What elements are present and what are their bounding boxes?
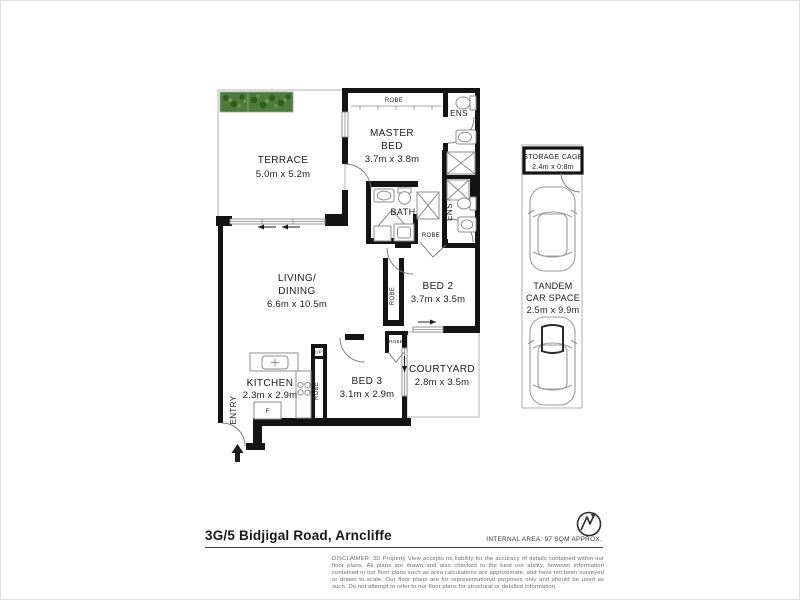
entry-door-arc <box>222 423 245 446</box>
footer-divider <box>205 547 603 548</box>
bath-label: BATH <box>391 207 416 217</box>
master-bed-label: BED <box>381 141 403 152</box>
shower-icon <box>447 180 469 200</box>
robe-label: ROBE <box>389 339 403 344</box>
tandem-label: TANDEM <box>533 281 572 291</box>
car-space-outline <box>522 145 582 408</box>
parking <box>522 145 582 408</box>
master-bed-dims: 3.7m x 3.8m <box>365 154 419 165</box>
robe-label: ROBE <box>422 233 440 239</box>
kitchen-dims: 2.3m x 2.9m <box>243 390 297 401</box>
bed2-dims: 3.7m x 3.5m <box>411 294 465 305</box>
floorplan-drawing: TERRACE 5.0m x 5.2m MASTER BED 3.7m x 3.… <box>0 0 800 600</box>
terrace-dims: 5.0m x 5.2m <box>256 169 310 180</box>
robe-label: ROBE <box>385 98 403 104</box>
ensuite-label: ENS <box>450 109 468 118</box>
laundry-cabinet-icon <box>374 226 391 241</box>
shower-icon <box>417 192 439 219</box>
plant-boxes <box>220 92 293 112</box>
internal-area-label: INTERNAL AREA: 97 SQM APPROX. <box>402 536 602 543</box>
fridge-label: F <box>266 409 270 415</box>
courtyard-dims: 2.8m x 3.5m <box>415 377 469 388</box>
entry-label: ENTRY <box>229 395 238 424</box>
storage-cage-door-arc <box>561 173 580 192</box>
agency-logo-icon <box>578 513 601 536</box>
kitchen-label: KITCHEN <box>247 378 294 389</box>
tandem-label: CAR SPACE <box>526 293 580 303</box>
bed3-dims: 3.1m x 2.9m <box>340 389 394 400</box>
car-icon <box>528 187 577 271</box>
ensuite2-label: ENS <box>445 203 454 221</box>
bed3-door-arc <box>340 338 364 362</box>
toilet-icon <box>399 192 411 204</box>
storage-cage-label: STORAGE CAGE <box>523 154 583 161</box>
bed2-label: BED 2 <box>423 281 454 292</box>
robe-label: ROBE <box>314 382 320 400</box>
shower-icon <box>447 152 475 174</box>
bed3-label: BED 3 <box>352 376 383 387</box>
toilet-icon <box>470 96 476 110</box>
living-label: LIVING/ <box>278 273 316 284</box>
toilet-icon <box>458 198 471 209</box>
entry-arrow-icon <box>232 444 244 462</box>
storage-cage-dims: 2.4m x 0.8m <box>532 164 574 171</box>
terrace-label: TERRACE <box>258 155 309 166</box>
floorplan-page: { "rooms": { "terrace": {"name": "TERRAC… <box>0 0 800 600</box>
courtyard-label: COURTYARD <box>409 364 475 375</box>
tandem-dims: 2.5m x 9.9m <box>527 305 580 315</box>
master-bed-label: MASTER <box>370 128 414 139</box>
toilet-icon <box>456 97 470 109</box>
car-icon <box>528 317 577 405</box>
robe-label: ROBE <box>390 287 396 305</box>
disclaimer-text: DISCLAIMER: 3D Property View accepts no … <box>332 556 604 591</box>
cupboard-label: CUP'D <box>312 350 327 355</box>
living-dims: 6.6m x 10.5m <box>267 299 327 310</box>
living-label: DINING <box>278 286 315 297</box>
